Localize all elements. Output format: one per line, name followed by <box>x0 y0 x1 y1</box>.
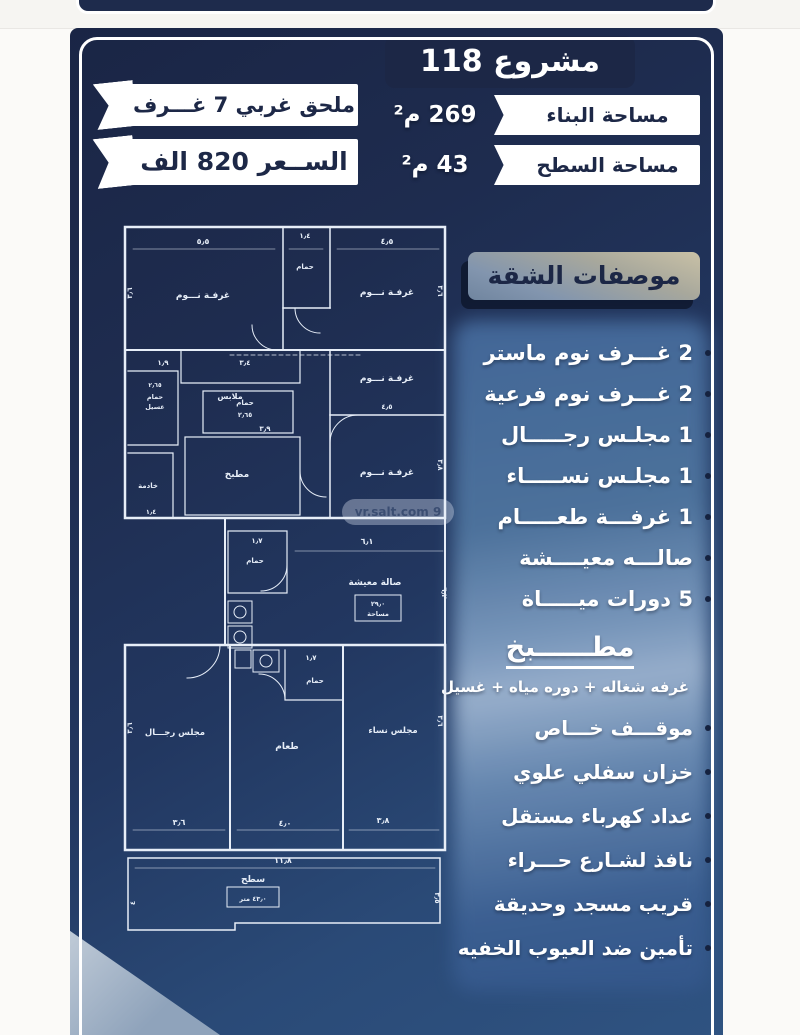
list-item: 1 مجلـس رجـــــال <box>415 422 715 448</box>
plan-label: ١٫٧ <box>305 654 317 662</box>
bullet-icon <box>705 514 711 520</box>
bullet-icon <box>705 901 711 907</box>
plan-label: ٣٫٨ <box>377 816 390 825</box>
list-item-label: صالـــه معيــــشة <box>519 546 693 570</box>
plan-label: ٣٫٥ <box>433 892 441 903</box>
list-item: صالـــه معيــــشة <box>415 545 715 571</box>
plan-label: ٤٫٥ <box>381 403 392 411</box>
plan-label: ٤٣٫٠ متر <box>238 895 266 903</box>
plan-label: مجلس نساء <box>368 726 417 736</box>
plan-label: ٥٫٥ <box>197 237 210 246</box>
plan-label: حمام <box>296 263 314 271</box>
plan-label: غرفـة نـــوم <box>360 374 414 384</box>
list-item-label: عداد كهرباء مستقل <box>501 804 693 828</box>
plan-label: سطح <box>241 875 265 885</box>
plan-label: ١٫٧ <box>251 537 263 545</box>
list-item-label: تأمين ضد العيوب الخفيه <box>458 936 693 960</box>
floor-plan: ٥٫٥غرفـة نـــوم٣٫٦١٫٤حمام٤٫٥غرفـة نـــوم… <box>115 213 455 938</box>
list-item: 2 غـــرف نوم ماستر <box>415 340 715 366</box>
plan-label: غرفـة نـــوم <box>176 291 230 301</box>
roof-area-label: مساحة السطح <box>515 145 700 185</box>
plan-label: ٣٫٦ <box>436 285 444 297</box>
plan-label: ١١٫٨ <box>274 856 292 865</box>
plan-label: ٤٫٠ <box>279 819 292 828</box>
plan-label: مساحة <box>367 610 389 618</box>
bullet-icon <box>705 857 711 863</box>
bullet-icon <box>705 769 711 775</box>
plan-label: ٢٫٦٥ <box>148 382 162 389</box>
plan-label: غسيل <box>145 403 165 411</box>
plan-label: ٣٫٦ <box>436 715 444 727</box>
list-item: نافذ لشـارع حـــراء <box>415 846 715 874</box>
bullet-icon <box>705 945 711 951</box>
list-item-label: 1 مجلـس رجـــــال <box>501 423 693 447</box>
plan-label: ٤ <box>129 901 137 905</box>
bullet-icon <box>705 391 711 397</box>
floorplan-poster: مشروع 118 ملحق غربي 7 غـــرف الســعر 820… <box>70 28 723 1035</box>
plan-label: صالة معيشة <box>349 578 402 588</box>
plan-label: ٦٫١ <box>361 537 374 546</box>
list-item: قريب مسجد وحديقة <box>415 890 715 918</box>
plan-label: ٢٩٫٠ <box>371 600 385 608</box>
plan-label: ٦٫٢ <box>440 587 448 599</box>
list-item-label: موقـــف خـــاص <box>534 716 693 740</box>
bullet-icon <box>705 473 711 479</box>
plan-label: ١٫٤ <box>299 232 310 240</box>
plan-label: حمام <box>306 677 324 685</box>
kitchen-heading-text: مطــــــبخ <box>506 632 635 669</box>
plan-label: ٤٫٥ <box>381 237 394 246</box>
project-title-banner: مشروع 118 <box>385 36 635 88</box>
bullet-icon <box>705 555 711 561</box>
listing-screenshot: مشروع 118 ملحق غربي 7 غـــرف الســعر 820… <box>0 0 800 1035</box>
list-item: 2 غـــرف نوم فرعية <box>415 381 715 407</box>
list-item: عداد كهرباء مستقل <box>415 802 715 830</box>
list-item: خزان سفلي علوي <box>415 758 715 786</box>
list-item: تأمين ضد العيوب الخفيه <box>415 934 715 962</box>
build-area-value: 269 م² <box>370 95 500 135</box>
bullet-icon <box>705 813 711 819</box>
list-item-label: قريب مسجد وحديقة <box>494 892 693 916</box>
list-item-label: 2 غـــرف نوم ماستر <box>483 341 693 365</box>
list-item-label: 5 دورات ميـــــاة <box>522 587 693 611</box>
kitchen-note: غرفه شغاله + دوره مياه + غسيل <box>425 678 705 696</box>
bullet-icon <box>705 596 711 602</box>
list-item: 1 مجلـس نســـــاء <box>415 463 715 489</box>
roof-area-value: 43 م² <box>370 145 500 185</box>
features-list: موقـــف خـــاصخزان سفلي علويعداد كهرباء … <box>415 714 715 962</box>
plan-label: حمام <box>236 399 254 407</box>
bullet-icon <box>705 432 711 438</box>
plan-label: مطبخ <box>225 470 250 480</box>
list-item-label: 1 غرفـــة طعـــــام <box>498 505 693 529</box>
build-area-label: مساحة البناء <box>515 95 700 135</box>
list-item: 5 دورات ميـــــاة <box>415 586 715 612</box>
list-item: موقـــف خـــاص <box>415 714 715 742</box>
kitchen-heading: مطــــــبخ <box>465 632 675 669</box>
annex-ribbon: ملحق غربي 7 غـــرف <box>130 84 358 126</box>
plan-label: ٣٫٨ <box>436 459 444 471</box>
plan-label: ١٫٤ <box>146 508 156 516</box>
list-item-label: 2 غـــرف نوم فرعية <box>484 382 693 406</box>
plan-label: ٢٫٦٥ <box>238 411 252 419</box>
specs-list: 2 غـــرف نوم ماستر2 غـــرف نوم فرعية1 مج… <box>415 340 715 612</box>
bullet-icon <box>705 725 711 731</box>
plan-label: غرفـة نـــوم <box>360 468 414 478</box>
plan-label: ٣٫٦ <box>126 287 134 299</box>
price-ribbon: الســعر 820 الف <box>130 139 358 185</box>
bullet-icon <box>705 350 711 356</box>
plan-label: حمام <box>147 393 164 401</box>
plan-label: خادمة <box>138 482 158 490</box>
plan-label: غرفـة نـــوم <box>360 288 414 298</box>
list-item-label: نافذ لشـارع حـــراء <box>508 848 693 872</box>
plan-label: ٣٫٤ <box>239 359 250 367</box>
list-item-label: خزان سفلي علوي <box>513 760 693 784</box>
list-item: 1 غرفـــة طعـــــام <box>415 504 715 530</box>
plan-label: ٣٫٦ <box>173 818 186 827</box>
plan-label: ١٫٩ <box>157 359 169 367</box>
specs-title-banner: موصفات الشقة <box>468 252 700 300</box>
plan-label: ٣٫٦ <box>126 722 134 734</box>
plan-label: طعام <box>275 742 299 752</box>
plan-label: مجلس رجـــال <box>145 728 205 738</box>
previous-poster-fragment <box>76 0 716 14</box>
plan-label: ٣٫٩ <box>259 425 271 433</box>
plan-label: حمام <box>246 557 264 565</box>
list-item-label: 1 مجلـس نســـــاء <box>506 464 693 488</box>
